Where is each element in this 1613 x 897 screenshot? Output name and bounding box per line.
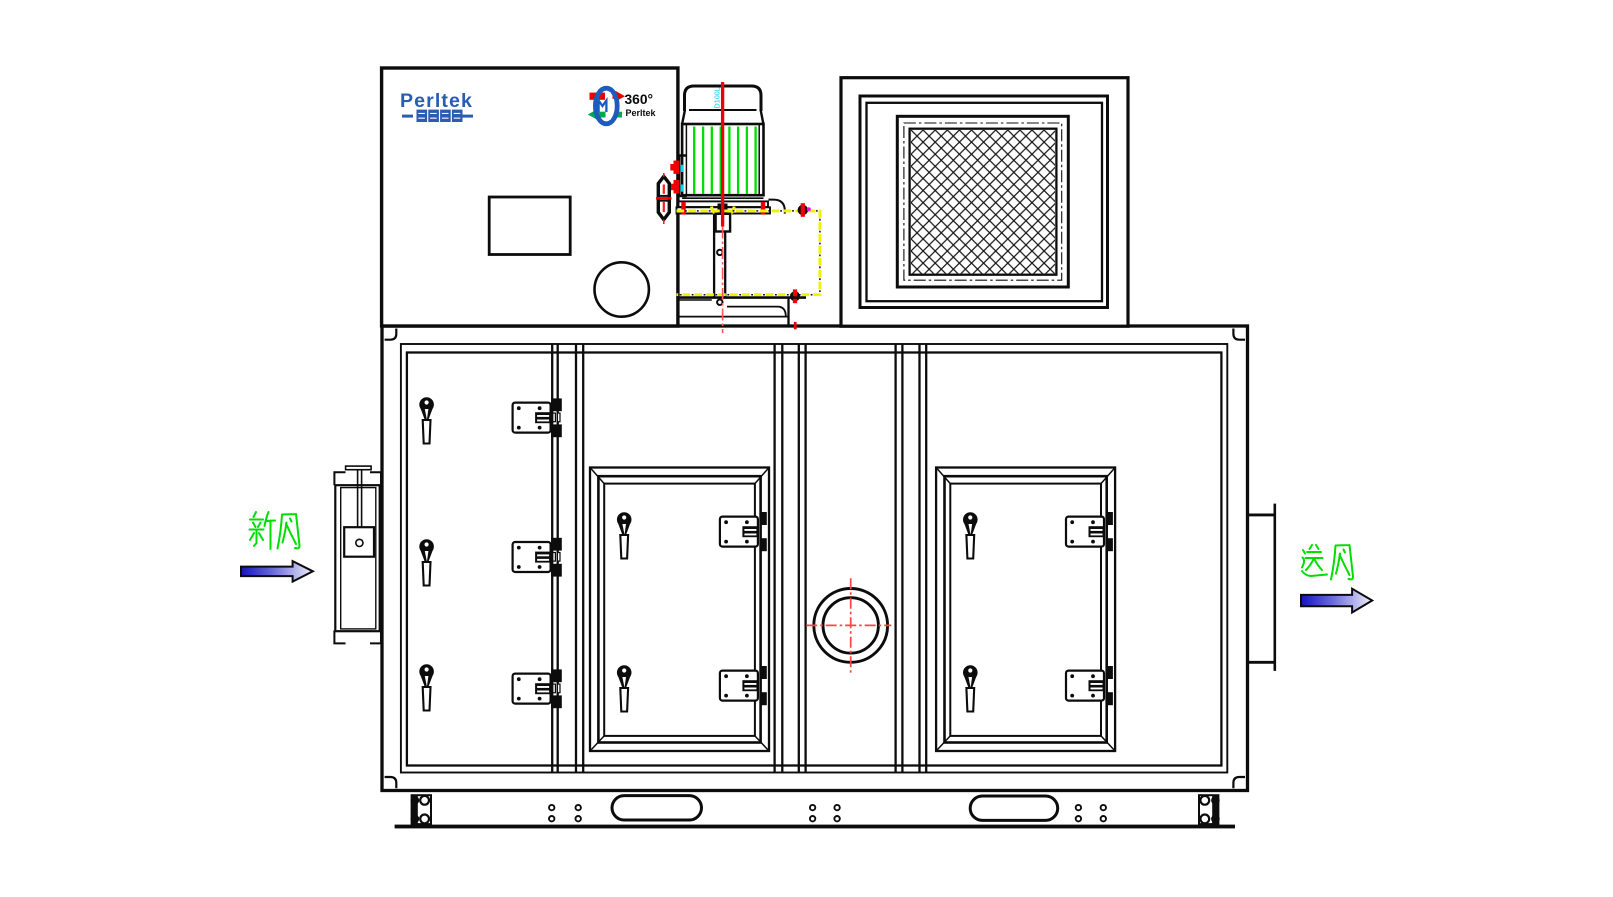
svg-text:Perltek: Perltek [400, 90, 473, 112]
svg-text:Perltek: Perltek [626, 108, 657, 118]
svg-text:360°: 360° [625, 92, 654, 107]
svg-text:D100L: D100L [713, 87, 722, 108]
